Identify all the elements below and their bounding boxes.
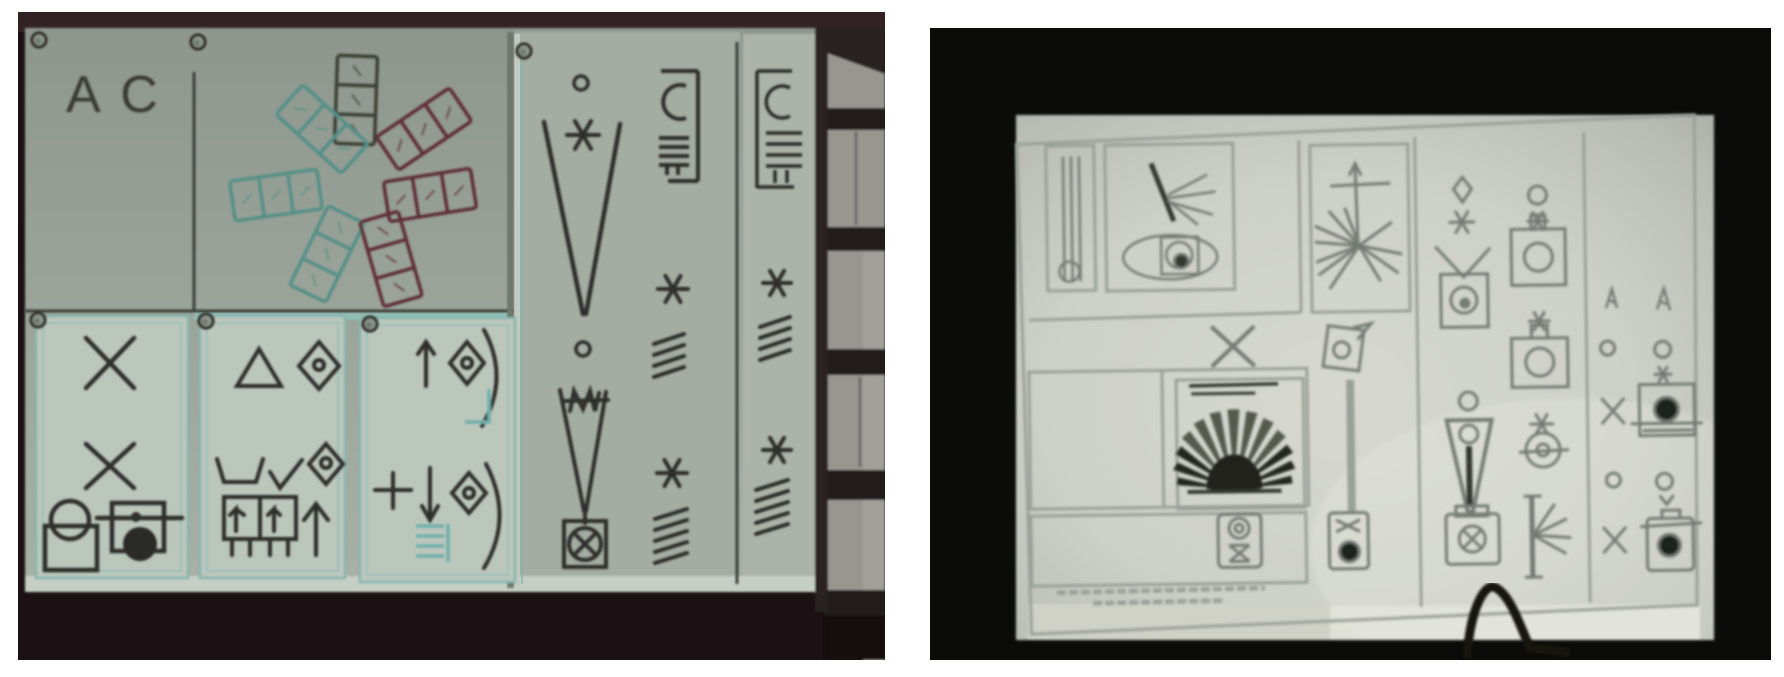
svg-text:A C: A C [66,66,162,124]
